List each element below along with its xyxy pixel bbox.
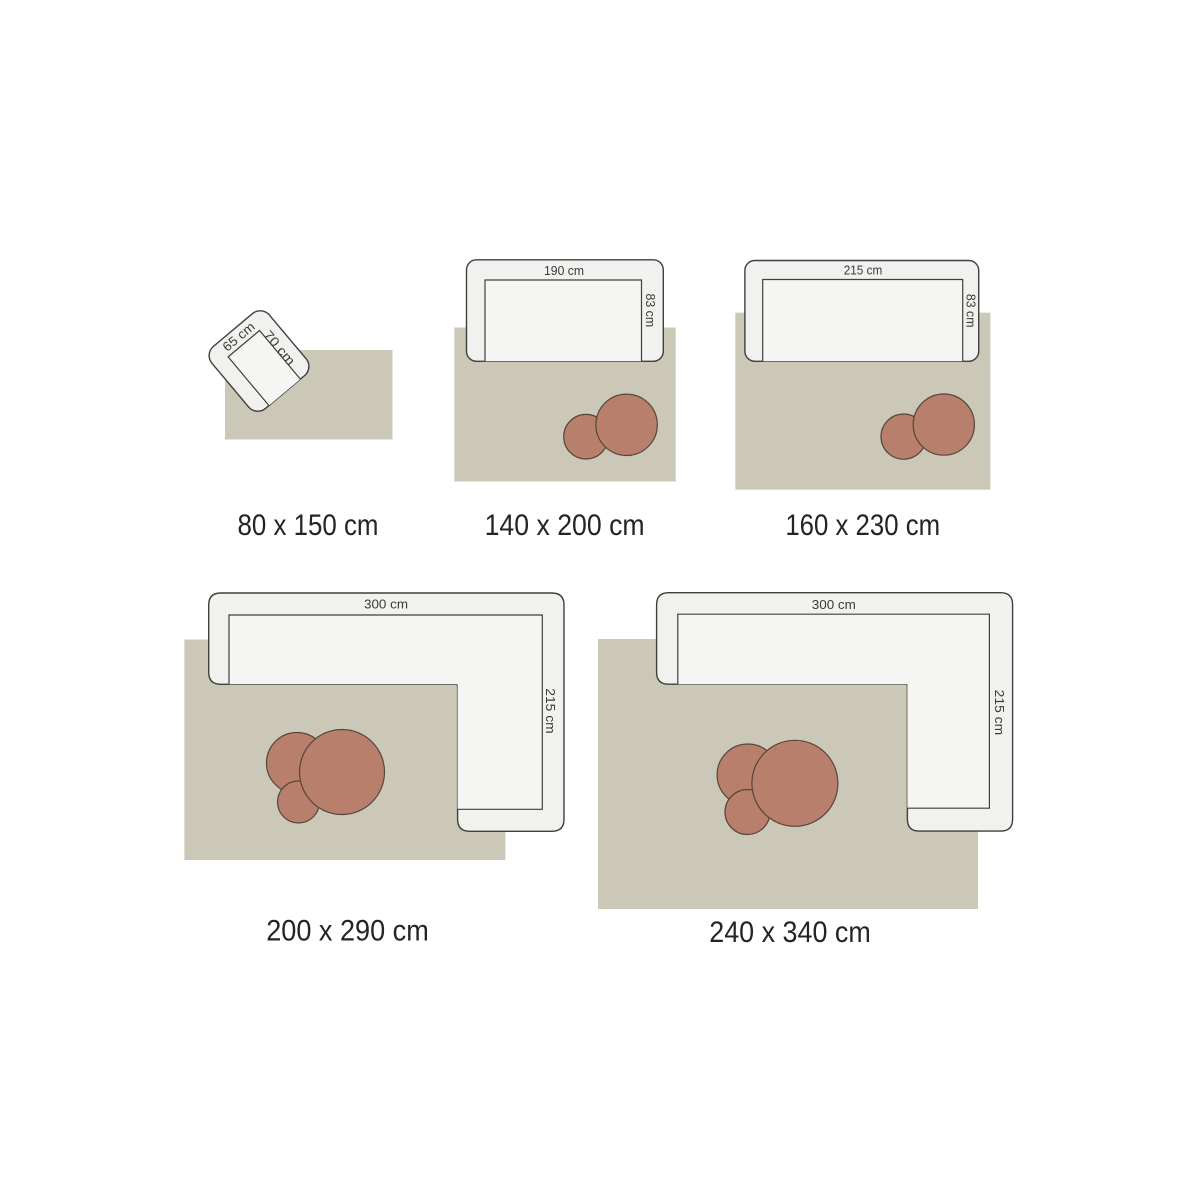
svg-text:80 x 150 cm: 80 x 150 cm (238, 509, 379, 542)
svg-text:215 cm: 215 cm (844, 262, 883, 277)
svg-text:190 cm: 190 cm (544, 263, 584, 278)
svg-text:160 x 230 cm: 160 x 230 cm (785, 509, 940, 542)
svg-text:300 cm: 300 cm (812, 597, 856, 612)
svg-text:83 cm: 83 cm (643, 294, 658, 328)
svg-text:300 cm: 300 cm (364, 597, 408, 612)
svg-text:215 cm: 215 cm (992, 690, 1007, 736)
svg-text:83 cm: 83 cm (964, 294, 979, 328)
svg-text:240 x 340 cm: 240 x 340 cm (709, 916, 871, 949)
svg-text:200 x 290 cm: 200 x 290 cm (266, 915, 429, 948)
svg-text:215 cm: 215 cm (543, 688, 558, 734)
svg-text:140 x 200 cm: 140 x 200 cm (485, 509, 645, 542)
